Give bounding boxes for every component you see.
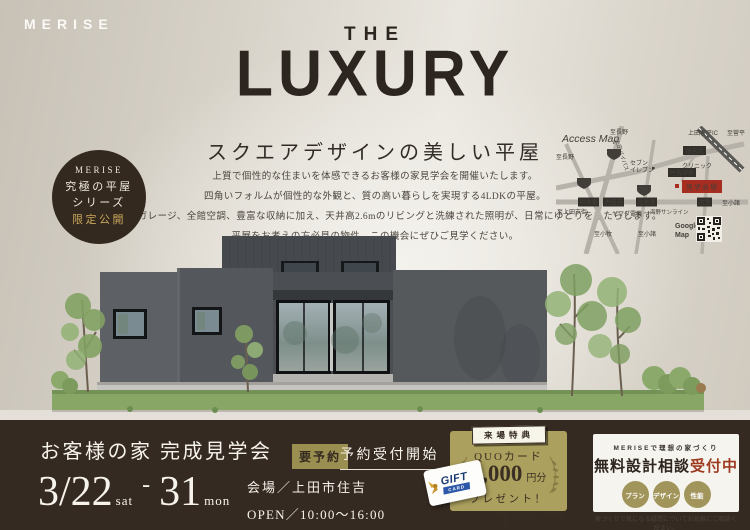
flyer-canvas: MERISE THE LUXURY スクエアデザインの美しい平屋 上質で個性的な…: [0, 0, 750, 530]
svg-text:住吉東: 住吉東: [637, 199, 655, 207]
svg-text:上田菅平IC: 上田菅平IC: [688, 129, 719, 137]
svg-text:古里: 古里: [698, 199, 710, 207]
date-end: 31: [159, 468, 201, 516]
ribbon-icon: [427, 477, 444, 496]
house-svg: [0, 228, 750, 426]
date-start-day: sat: [116, 493, 133, 509]
consult-title-main: 無料設計相談: [594, 459, 690, 475]
chip-design: デザイン: [653, 481, 680, 508]
chip-performance: 性能: [684, 481, 711, 508]
svg-text:住吉北: 住吉北: [685, 147, 703, 155]
gift-badge: 来場特典: [471, 425, 545, 444]
venue-line: 会場／上田市住吉: [247, 477, 385, 496]
date-range-dash: -: [142, 472, 150, 499]
badge-brand: MERISE: [52, 165, 146, 175]
route-shield-icon: 18: [637, 185, 651, 196]
consult-heading: MERISEで理想の家づくり: [593, 442, 739, 452]
venue-marker: 見学会場: [675, 180, 722, 193]
svg-text:18: 18: [581, 181, 587, 187]
free-consultation-box: MERISEで理想の家づくり 無料設計相談受付中 プラン デザイン 性能 家づく…: [593, 434, 739, 512]
svg-text:至菅平: 至菅平: [727, 129, 745, 137]
badge-limited: 限定公開: [52, 211, 146, 229]
svg-text:ヤマダ電機: ヤマダ電機: [612, 210, 642, 218]
venue-open-info: 会場／上田市住吉 OPEN／10:00～16:00: [247, 477, 385, 523]
consult-chips: プラン デザイン 性能: [593, 481, 739, 508]
hero-title-luxury: LUXURY: [0, 36, 750, 111]
laurel-right-icon: [548, 455, 560, 495]
consult-title: 無料設計相談受付中: [593, 455, 739, 476]
house-illustration: [0, 228, 750, 426]
gift-note: アンケートにご回答いただいたご家族限定！: [450, 510, 567, 528]
event-title: お客様の家 完成見学会: [40, 435, 273, 464]
svg-text:18: 18: [641, 188, 647, 194]
svg-text:セブン: セブン: [630, 159, 648, 167]
gift-amount-unit: 円分: [526, 473, 546, 484]
svg-text:至長野: 至長野: [556, 153, 574, 161]
svg-text:住吉中央: 住吉中央: [670, 169, 694, 177]
badge-series-word: シリーズ: [52, 195, 146, 211]
svg-text:見学会場: 見学会場: [686, 183, 718, 192]
svg-text:海野サンライン: 海野サンライン: [650, 208, 689, 216]
svg-text:至小諸: 至小諸: [722, 199, 740, 207]
consult-note: 家づくりで気になる疑問についてお気軽にご相談ください。: [593, 514, 739, 530]
open-hours-line: OPEN／10:00～16:00: [247, 504, 385, 523]
badge-series-name: 究極の平屋: [52, 179, 146, 195]
svg-text:吉田西: 吉田西: [604, 200, 622, 207]
svg-text:クリニック: クリニック: [682, 163, 712, 170]
visitor-gift-box: 来場特典 QUOカード 3,000 円分 プ: [450, 431, 567, 511]
reservation-status: 予約受付開始: [340, 444, 439, 470]
svg-text:中央東: 中央東: [579, 199, 597, 207]
event-info-bar: お客様の家 完成見学会 要予約 予約受付開始 3/22 sat - 31 mon…: [0, 420, 750, 530]
date-start: 3/22: [38, 468, 113, 516]
consult-title-accent: 受付中: [690, 459, 738, 475]
svg-text:至長野: 至長野: [610, 128, 628, 136]
route-shield-icon: 18: [577, 178, 591, 189]
chip-plan: プラン: [622, 481, 649, 508]
svg-text:イレブン: イレブン: [630, 166, 654, 174]
date-end-day: mon: [204, 493, 230, 509]
event-dates: 3/22 sat - 31 mon: [38, 468, 230, 516]
svg-text:至上田市街: 至上田市街: [557, 208, 587, 216]
